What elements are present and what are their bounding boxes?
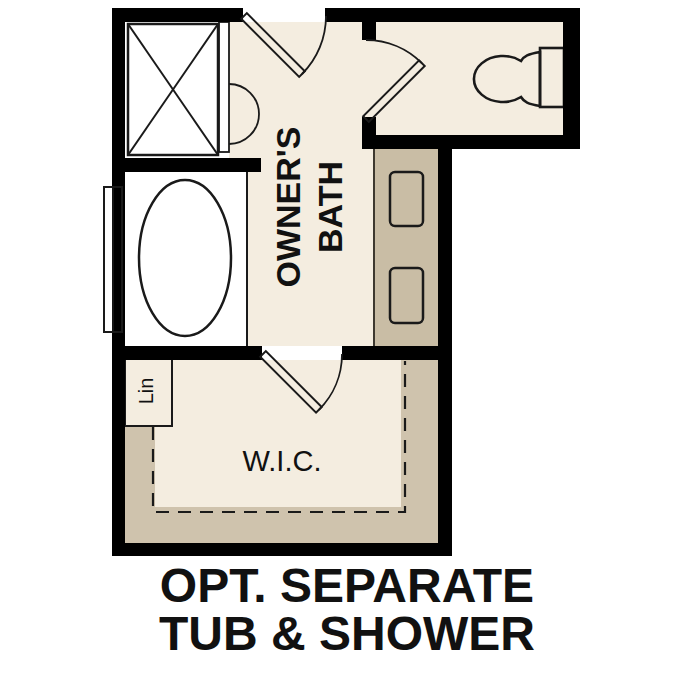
owners-bath-label-line2: BATH <box>311 161 349 253</box>
right-wall <box>438 135 452 556</box>
caption-line1: OPT. SEPARATE <box>160 559 534 612</box>
closet-shelf-bottom <box>125 507 438 543</box>
vanity-countertop <box>373 149 438 347</box>
owners-bath-label-line1: OWNER'S <box>269 126 307 287</box>
exterior-wall-top-left <box>112 8 243 22</box>
wic-bottom-wall <box>112 543 452 556</box>
vanity-counter <box>373 149 438 347</box>
tub-deck <box>125 172 247 346</box>
toilet-room-bottom-wall <box>362 135 580 149</box>
closet-shelf-right <box>401 360 438 543</box>
exterior-wall-top-right <box>325 8 580 22</box>
floorplan-figure: OWNER'S BATH W.I.C. Lin OPT. SEPARATE TU… <box>0 0 687 687</box>
wic-top-wall-left <box>112 346 262 360</box>
toilet-room-door-stub-top <box>362 22 376 40</box>
wic-top-wall-right <box>342 346 452 360</box>
floorplan-svg: OWNER'S BATH W.I.C. Lin OPT. SEPARATE TU… <box>0 0 687 687</box>
caption-line2: TUB & SHOWER <box>159 607 535 660</box>
exterior-wall-right-toilet-room <box>563 8 580 149</box>
shower-tub-divider-wall <box>112 158 261 172</box>
lin-label: Lin <box>135 378 157 405</box>
wic-label: W.I.C. <box>243 445 322 477</box>
left-wall <box>112 8 125 556</box>
